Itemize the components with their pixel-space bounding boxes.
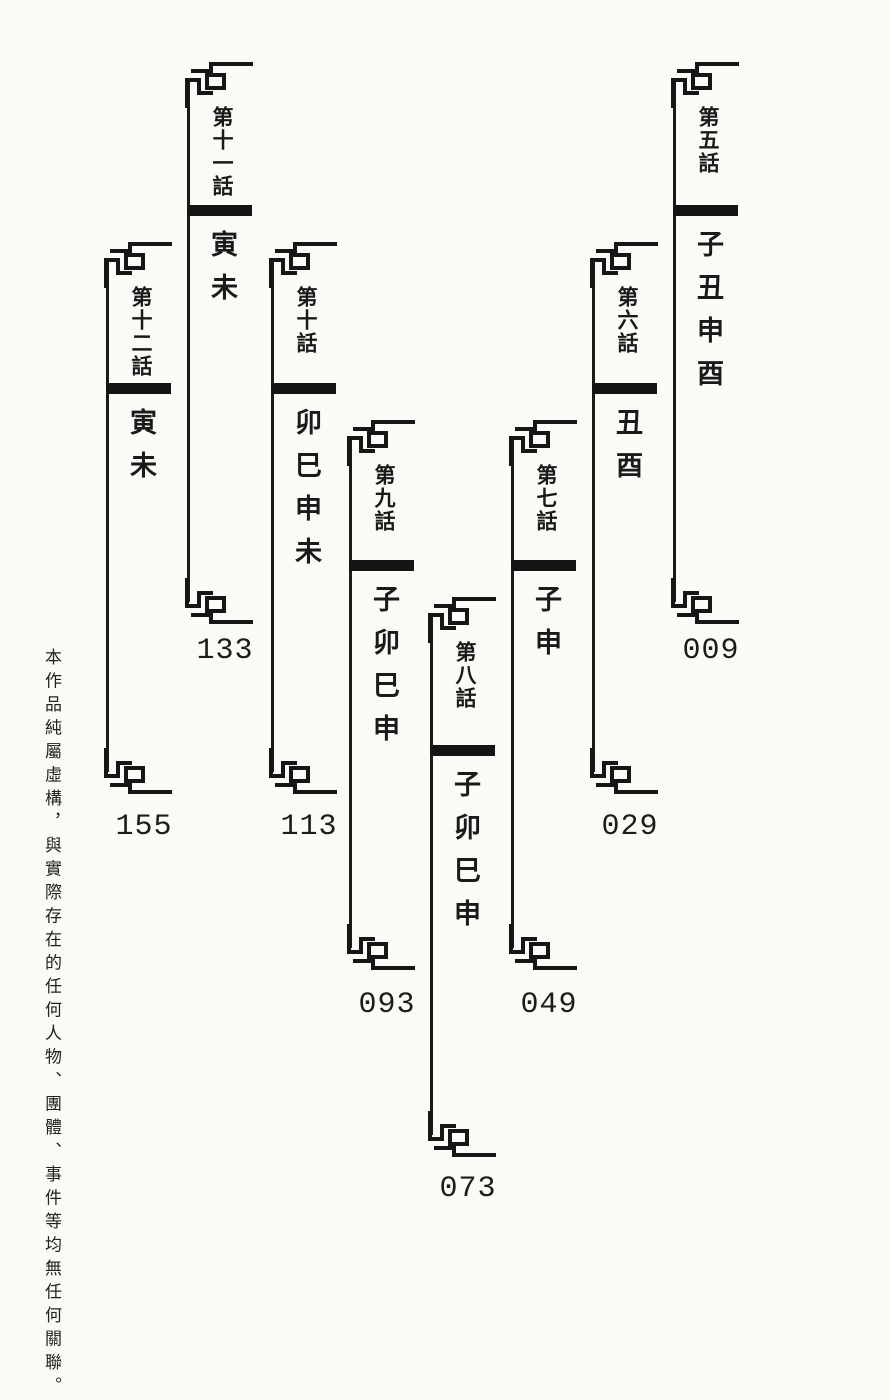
chapter-title: 寅未	[127, 408, 154, 494]
chapter-title: 子申	[532, 585, 559, 671]
chapter-separator-bar	[271, 383, 336, 394]
chapter-number-label: 第九話	[373, 464, 394, 533]
chapter-number-label: 第六話	[616, 286, 637, 355]
fret-corner-ornament-top	[671, 60, 739, 108]
chapter-number-label: 第十二話	[130, 286, 151, 378]
entry-vertical-rule	[592, 258, 595, 772]
chapter-separator-bar	[592, 383, 657, 394]
fret-corner-ornament-top	[428, 595, 496, 643]
entry-vertical-rule	[511, 436, 514, 948]
chapter-page-number: 093	[354, 988, 420, 1022]
fret-corner-ornament-bottom	[590, 748, 658, 796]
chapter-separator-bar	[187, 205, 252, 216]
chapter-number-label: 第八話	[454, 641, 475, 710]
entry-vertical-rule	[106, 258, 109, 772]
fret-corner-ornament-bottom	[671, 578, 739, 626]
fret-corner-ornament-bottom	[347, 924, 415, 972]
fret-corner-ornament-bottom	[428, 1111, 496, 1159]
chapter-title: 寅未	[208, 230, 235, 316]
fret-corner-ornament-top	[104, 240, 172, 288]
chapter-page-number: 049	[516, 988, 582, 1022]
entry-vertical-rule	[349, 436, 352, 948]
fret-corner-ornament-top	[185, 60, 253, 108]
chapter-page-number: 073	[435, 1172, 501, 1206]
chapter-number-label: 第十話	[295, 286, 316, 355]
chapter-title: 子丑申酉	[694, 230, 721, 402]
chapter-page-number: 029	[597, 810, 663, 844]
chapter-title: 子卯巳申	[370, 585, 397, 757]
chapter-page-number: 133	[192, 634, 258, 668]
fret-corner-ornament-top	[347, 418, 415, 466]
toc-page: 本作品純屬虛構，與實際存在的任何人物、團體、事件等均無任何關聯。 第十二話 寅未…	[0, 0, 890, 1274]
chapter-number-label: 第五話	[697, 106, 718, 175]
chapter-separator-bar	[349, 560, 414, 571]
chapter-page-number: 155	[111, 810, 177, 844]
chapter-page-number: 113	[276, 810, 342, 844]
fret-corner-ornament-top	[590, 240, 658, 288]
chapter-number-label: 第十一話	[211, 106, 232, 198]
fiction-disclaimer-text: 本作品純屬虛構，與實際存在的任何人物、團體、事件等均無任何關聯。	[43, 648, 60, 1400]
chapter-separator-bar	[106, 383, 171, 394]
entry-vertical-rule	[271, 258, 274, 772]
fret-corner-ornament-bottom	[509, 924, 577, 972]
chapter-separator-bar	[511, 560, 576, 571]
chapter-title: 卯巳申未	[292, 408, 319, 580]
entry-vertical-rule	[673, 78, 676, 602]
chapter-title: 丑酉	[613, 408, 640, 494]
chapter-title: 子卯巳申	[451, 770, 478, 942]
entry-vertical-rule	[430, 613, 433, 1135]
fret-corner-ornament-bottom	[104, 748, 172, 796]
fret-corner-ornament-bottom	[269, 748, 337, 796]
chapter-page-number: 009	[678, 634, 744, 668]
entry-vertical-rule	[187, 78, 190, 602]
chapter-number-label: 第七話	[535, 464, 556, 533]
fret-corner-ornament-bottom	[185, 578, 253, 626]
fret-corner-ornament-top	[269, 240, 337, 288]
chapter-separator-bar	[673, 205, 738, 216]
fret-corner-ornament-top	[509, 418, 577, 466]
chapter-separator-bar	[430, 745, 495, 756]
